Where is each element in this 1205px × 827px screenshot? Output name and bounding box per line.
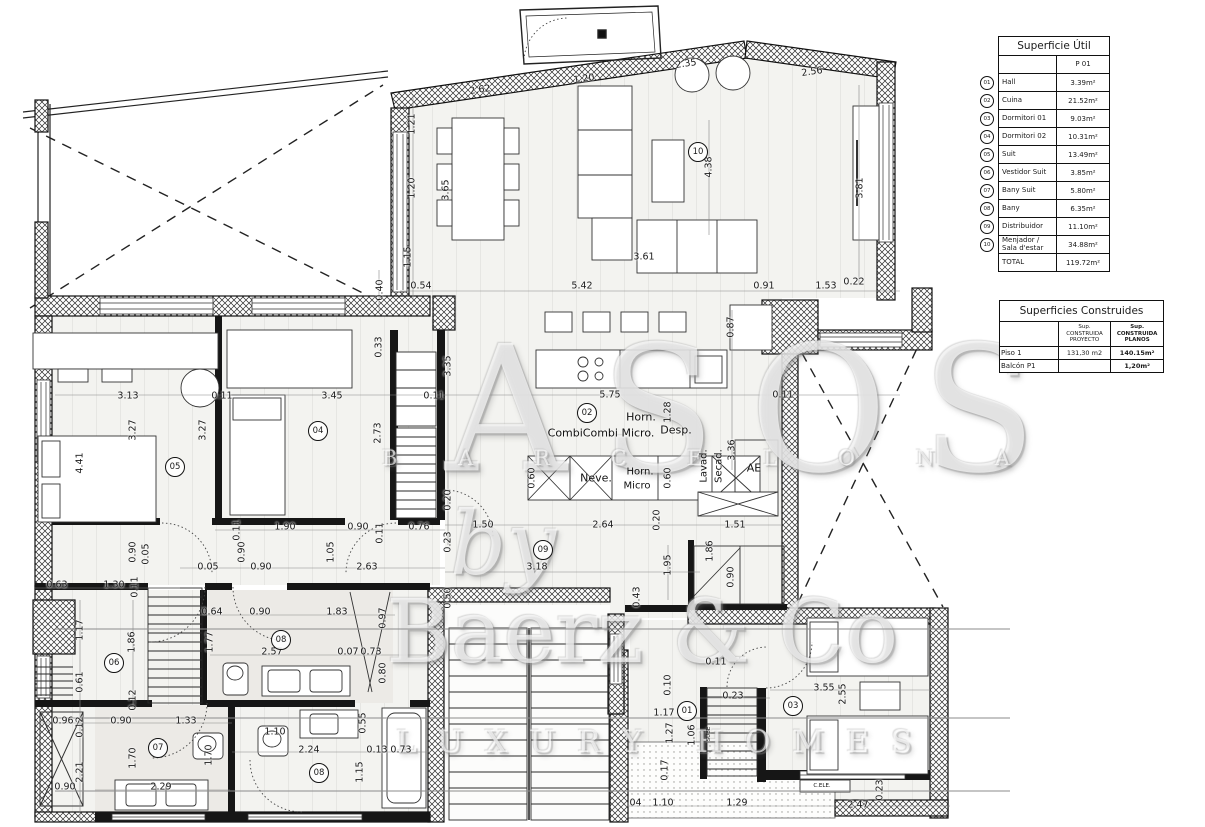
dimension-label: 0.90 xyxy=(347,522,368,533)
row-value: 3.85m² xyxy=(1056,164,1109,181)
dimension-label: 0.43 xyxy=(632,586,643,607)
dimension-label: 1.86 xyxy=(127,631,138,652)
dimension-label: 0.87 xyxy=(726,316,737,337)
fixture-label: Horn. xyxy=(626,467,653,478)
row-proyecto-value: 131,30 m2 xyxy=(1058,347,1111,359)
dimension-label: 4.38 xyxy=(704,156,715,177)
dimension-label: 3.36 xyxy=(727,439,738,460)
dimension-label: 1.50 xyxy=(472,520,493,531)
dimension-label: 3.35 xyxy=(443,355,454,376)
dimension-label: 0.11 xyxy=(375,522,386,543)
row-number-badge: 08 xyxy=(980,202,994,216)
superficies-construides-header: Sup. CONSTRUIDA PROYECTO Sup. CONSTRUIDA… xyxy=(1000,322,1163,347)
dimension-label: 0.73 xyxy=(360,647,381,658)
table-row: 04Dormitori 0210.31m² xyxy=(999,128,1109,146)
row-proyecto-value xyxy=(1058,360,1111,372)
row-planos-value: 140.15m² xyxy=(1110,347,1163,359)
dimension-label: 1.10 xyxy=(264,727,285,738)
dimension-label: 1.29 xyxy=(726,798,747,809)
room-number-badge: 07 xyxy=(148,738,168,758)
dimension-label: 1.15 xyxy=(355,761,366,782)
dimension-label: 5.75 xyxy=(599,390,620,401)
superficie-util-table: Superficie Útil P 01 01Hall3.39m²02Cuina… xyxy=(978,36,1110,272)
dimension-label: 0.07 xyxy=(337,647,358,658)
dimension-label: 0.97 xyxy=(378,607,389,628)
dimension-label: 3.27 xyxy=(128,419,139,440)
table-row: 08Bany6.35m² xyxy=(999,200,1109,218)
fixture-label: Desp. xyxy=(660,424,691,437)
row-label: Piso 1 xyxy=(1000,347,1058,359)
dimension-label: 1.06 xyxy=(687,724,698,745)
dimension-label: 1.90 xyxy=(274,522,295,533)
dimension-label: 0.60 xyxy=(663,467,674,488)
dimension-label: 0.90 xyxy=(128,541,139,562)
dimension-label: 3.81 xyxy=(855,177,866,198)
row-label: Distribuidor xyxy=(999,222,1056,232)
row-label: Suit xyxy=(999,150,1056,160)
dimension-label: 0.23 xyxy=(722,691,743,702)
row-value: 6.35m² xyxy=(1056,200,1109,217)
dimension-label: 1.20 xyxy=(407,177,418,198)
dimension-label: 0.11 xyxy=(423,391,444,402)
dimension-label: 3.18 xyxy=(526,562,547,573)
row-number-badge: 01 xyxy=(980,76,994,90)
dimension-label: 0.73 xyxy=(390,745,411,756)
table-row: Balcón P11,20m² xyxy=(1000,360,1163,372)
watermark-rule xyxy=(55,628,1010,630)
dimension-label: 1.05 xyxy=(326,541,337,562)
dimension-label: 0.90 xyxy=(110,716,131,727)
dimension-label: 1.17 xyxy=(653,708,674,719)
dimension-label: 0.90 xyxy=(237,541,248,562)
dimension-label: 0.54 xyxy=(410,281,431,292)
dimension-label: 0.76 xyxy=(408,522,429,533)
dimension-label: 0.12 xyxy=(75,716,86,737)
row-label: Dormitori 01 xyxy=(999,114,1056,124)
dimension-label: 1.15 xyxy=(403,246,414,267)
superficies-construides-table: Superficies Construides Sup. CONSTRUIDA … xyxy=(999,300,1164,373)
room-number-badge: 08 xyxy=(309,763,329,783)
table-row: 09Distribuidor11.10m² xyxy=(999,218,1109,236)
dimension-label: 0.20 xyxy=(443,489,454,510)
dimension-label: 3.27 xyxy=(198,419,209,440)
dimension-label: 2.64 xyxy=(592,520,613,531)
dimension-label: 1.86 xyxy=(705,540,716,561)
watermark-rule xyxy=(55,717,1010,719)
row-label: Dormitori 02 xyxy=(999,132,1056,142)
dimension-label: 0.11 xyxy=(705,657,726,668)
row-number-badge: 10 xyxy=(980,238,994,252)
row-label: Menjador / Sala d'estar xyxy=(999,236,1056,253)
dimension-label: 0.23 xyxy=(443,531,454,552)
dimension-label: 1.83 xyxy=(326,607,347,618)
fixture-label: Lavad. xyxy=(699,449,710,482)
dimension-label: 0.11 xyxy=(130,576,141,597)
dimension-label: 0.11 xyxy=(211,391,232,402)
col-header-proyecto: Sup. CONSTRUIDA PROYECTO xyxy=(1058,322,1111,346)
dimension-label: 3.13 xyxy=(117,391,138,402)
col-header-planos: Sup. CONSTRUIDA PLANOS xyxy=(1110,322,1163,346)
fixture-label: Horn. xyxy=(626,411,656,424)
row-label: Bany xyxy=(999,204,1056,214)
row-label: Cuina xyxy=(999,96,1056,106)
dimension-label: 0.05 xyxy=(197,562,218,573)
dimension-label: 1.53 xyxy=(815,281,836,292)
dimension-label: 0.11 xyxy=(772,390,793,401)
dimension-label: 0.90 xyxy=(250,562,271,573)
row-number-badge: 06 xyxy=(980,166,994,180)
room-number-badge: 01 xyxy=(677,701,697,721)
fixture-label: SUBE xyxy=(706,727,712,742)
dimension-label: 3.45 xyxy=(321,391,342,402)
dimension-label: 1.70 xyxy=(204,744,215,765)
table-row: 07Bany Suit5.80m² xyxy=(999,182,1109,200)
dimension-label: 1.30 xyxy=(103,580,124,591)
floorplan-page: ASOS B A R C E L O N A by Baerz & Co LUX… xyxy=(0,0,1205,827)
dimension-label: 3.55 xyxy=(813,683,834,694)
table-total-row: TOTAL119.72m² xyxy=(999,254,1109,271)
dimension-label: 1.28 xyxy=(663,401,674,422)
row-value: 5.80m² xyxy=(1056,182,1109,199)
fixture-label: C.ELE. xyxy=(813,783,830,789)
balcony-top xyxy=(520,6,661,64)
row-number-badge: 03 xyxy=(980,112,994,126)
dimension-label: 0.64 xyxy=(201,607,222,618)
dimension-label: 0.12 xyxy=(128,689,139,710)
room-number-badge: 05 xyxy=(165,457,185,477)
dimension-label: 2.55 xyxy=(838,683,849,704)
dimension-label: 0.10 xyxy=(663,674,674,695)
dimension-label: 0.20 xyxy=(652,509,663,530)
dimension-label: 2.29 xyxy=(150,782,171,793)
dimension-label: 0.91 xyxy=(753,281,774,292)
row-number-badge: 07 xyxy=(980,184,994,198)
neighbour-boundary-lines xyxy=(23,71,388,298)
room-number-badge: 10 xyxy=(688,142,708,162)
dimension-label: 1.21 xyxy=(407,113,418,134)
table-row: 03Dormitori 019.03m² xyxy=(999,110,1109,128)
dimension-label: 1.70 xyxy=(128,747,139,768)
row-value: 21.52m² xyxy=(1056,92,1109,109)
dimension-label: 4.41 xyxy=(75,452,86,473)
superficie-util-title: Superficie Útil xyxy=(998,36,1110,56)
dimension-label: 0.90 xyxy=(54,782,75,793)
dimension-label: 0.05 xyxy=(141,543,152,564)
row-value: 13.49m² xyxy=(1056,146,1109,163)
watermark-rule xyxy=(55,790,1010,792)
room-number-badge: 09 xyxy=(533,540,553,560)
row-number-badge: 02 xyxy=(980,94,994,108)
dimension-label: 3.61 xyxy=(633,252,654,263)
dimension-label: 0.50 xyxy=(443,587,454,608)
row-number-badge: 09 xyxy=(980,220,994,234)
room-number-badge: 02 xyxy=(577,403,597,423)
dimension-label: 1.51 xyxy=(724,520,745,531)
row-label: Balcón P1 xyxy=(1000,360,1058,372)
dimension-label: 0.80 xyxy=(378,662,389,683)
row-value: 34.88m² xyxy=(1056,236,1109,253)
dimension-label: 0.11 xyxy=(232,519,243,540)
dimension-label: 0.13 xyxy=(366,745,387,756)
dimension-label: 0.90 xyxy=(726,566,737,587)
dimension-label: 0.61 xyxy=(75,671,86,692)
table-row: 05Suit13.49m² xyxy=(999,146,1109,164)
fixture-label: AE xyxy=(747,462,761,475)
dimension-label: 0.96 xyxy=(52,716,73,727)
superficie-util-header: P 01 xyxy=(999,56,1109,74)
dimension-label: 0.60 xyxy=(527,467,538,488)
row-label: Hall xyxy=(999,78,1056,88)
row-value: 9.03m² xyxy=(1056,110,1109,127)
dimension-label: 2.73 xyxy=(373,422,384,443)
row-number-badge: 05 xyxy=(980,148,994,162)
dimension-label: 2.47 xyxy=(847,800,868,811)
dimension-label: 1.33 xyxy=(175,716,196,727)
fixture-label: Micro xyxy=(624,481,651,492)
table-row: 10Menjador / Sala d'estar34.88m² xyxy=(999,236,1109,254)
dimension-label: 0.90 xyxy=(249,607,270,618)
dimension-label: 1.77 xyxy=(205,631,216,652)
dimension-label: 2.63 xyxy=(356,562,377,573)
row-value: 3.39m² xyxy=(1056,74,1109,91)
row-value: 10.31m² xyxy=(1056,128,1109,145)
dimension-label: 1.95 xyxy=(663,554,674,575)
dimension-label: 0.17 xyxy=(660,759,671,780)
superficies-construides-title: Superficies Construides xyxy=(1000,301,1163,322)
dimension-label: .04 xyxy=(626,798,641,809)
row-label: Bany Suit xyxy=(999,186,1056,196)
table-row: 01Hall3.39m² xyxy=(999,74,1109,92)
total-value: 119.72m² xyxy=(1056,254,1109,271)
table-row: 02Cuina21.52m² xyxy=(999,92,1109,110)
col-header-p01: P 01 xyxy=(1056,56,1109,73)
fixture-label: CombiCombi Micro. xyxy=(548,427,655,440)
dimension-label: 1.17 xyxy=(75,619,86,640)
table-row: 06Vestidor Suit3.85m² xyxy=(999,164,1109,182)
fixture-label: Secad. xyxy=(714,449,725,483)
row-planos-value: 1,20m² xyxy=(1110,360,1163,372)
row-value: 11.10m² xyxy=(1056,218,1109,235)
dimension-label: 0.22 xyxy=(843,277,864,288)
row-number-badge: 04 xyxy=(980,130,994,144)
dimension-label: 1.27 xyxy=(665,722,676,743)
dimension-label: 3.65 xyxy=(441,179,452,200)
row-label: Vestidor Suit xyxy=(999,168,1056,178)
dimension-label: 0.55 xyxy=(358,712,369,733)
dimension-label: 0.63 xyxy=(46,580,67,591)
dimension-label: 0.40 xyxy=(375,279,386,300)
room-number-badge: 04 xyxy=(308,421,328,441)
dimension-label: 0.33 xyxy=(374,336,385,357)
table-row: Piso 1131,30 m2140.15m² xyxy=(1000,347,1163,360)
dimension-label: 2.24 xyxy=(298,745,319,756)
room-number-badge: 08 xyxy=(271,630,291,650)
fixture-label: Neve. xyxy=(580,472,612,485)
dimension-label: 1.10 xyxy=(652,798,673,809)
dimension-label: 5.42 xyxy=(571,281,592,292)
dimension-label: 2.21 xyxy=(75,761,86,782)
room-number-badge: 06 xyxy=(104,653,124,673)
total-label: TOTAL xyxy=(999,258,1056,268)
dimension-label: 0.23 xyxy=(875,779,886,800)
room-number-badge: 03 xyxy=(783,696,803,716)
